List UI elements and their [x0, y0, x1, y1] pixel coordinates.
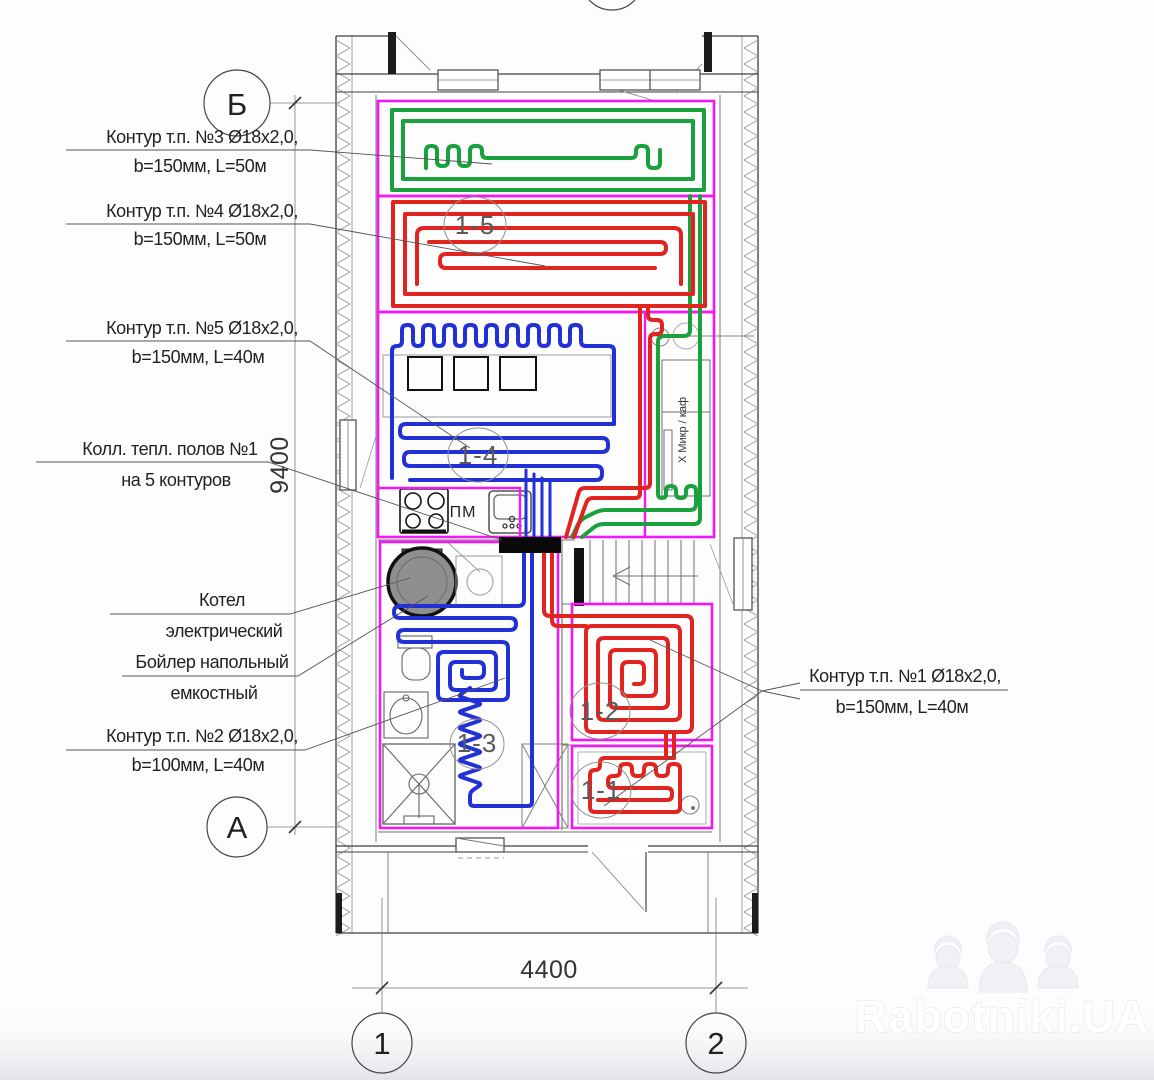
cabinet-label: Х Микр / каф [677, 397, 689, 463]
callout-boiler-line2: электрический [166, 621, 283, 641]
room-label-1-1: 1-1 [581, 775, 622, 805]
worker-body-icon [928, 966, 968, 988]
callout-c2-line1: Контур т.п. №2 Ø18х2,0, [106, 726, 298, 746]
callout-coll-line1: Колл. тепл. полов №1 [82, 439, 258, 459]
shaft [522, 744, 568, 828]
stairs [574, 540, 698, 606]
axis-label-2: 2 [707, 1026, 724, 1061]
watermark: Rabotniki.UA [855, 922, 1150, 1042]
callout-tank-line1: Бойлер напольный [135, 652, 288, 672]
callout-c4-line1: Контур т.п. №4 Ø18х2,0, [106, 201, 298, 221]
pipe-blue5-serpentine [400, 424, 614, 480]
pipe-red4-inner [429, 242, 666, 268]
dim-width: 4400 [520, 956, 578, 984]
stove [400, 489, 448, 533]
room-label-1-2: 1-2 [580, 696, 621, 726]
callout-boiler-line1: Котел [199, 590, 245, 610]
window-bottom [456, 838, 504, 858]
heating-pipes [392, 110, 705, 812]
window-top-left [438, 70, 498, 90]
callout-coll-line2: на 5 контуров [121, 470, 231, 490]
axis-label-a: А [227, 810, 248, 845]
room-label-1-3: 1-3 [457, 728, 498, 758]
callout-c1-line1: Контур т.п. №1 Ø18х2,0, [809, 666, 1001, 686]
pipe-red4-tail-b [574, 306, 640, 537]
axis-label-b: Б [227, 87, 247, 122]
pipe-blue5-wave [392, 325, 614, 478]
plan-svg: Rabotniki.UA [0, 0, 1154, 1080]
callout-c5-line2: b=150мм, L=40м [132, 347, 265, 367]
callout-c5-line1: Контур т.п. №5 Ø18х2,0, [106, 318, 298, 338]
shower [383, 744, 455, 824]
dim-height: 9400 [266, 436, 294, 494]
callout-tank-line2: емкостный [170, 683, 257, 703]
callout-c4-line2: b=150мм, L=50м [134, 229, 267, 249]
window-right-wall [710, 538, 752, 610]
floor-drain [681, 796, 699, 814]
window-top-right [600, 70, 700, 90]
pipe-green-inner [426, 146, 660, 168]
callout-c3-line2: b=150мм, L=50м [134, 156, 267, 176]
axis-label-1: 1 [373, 1026, 390, 1061]
room-label-1-5: 1-5 [455, 210, 496, 240]
room-label-1-4: 1-4 [458, 440, 499, 470]
callout-c1-line2: b=150мм, L=40м [836, 697, 969, 717]
window-left-wall [340, 420, 376, 490]
manifold-collector [499, 537, 561, 553]
entry-door [592, 852, 646, 912]
floorplan-drawing: { "axes": { "top_left": "Б", "bottom_lef… [0, 0, 1154, 1080]
watermark-text: Rabotniki.UA [855, 991, 1150, 1042]
callout-c2-line2: b=100мм, L=40м [132, 755, 265, 775]
dishwasher-label: ПМ [450, 504, 477, 521]
pipe-green-tail-a [572, 196, 696, 537]
counter-unit [408, 357, 442, 390]
washbasin [384, 692, 428, 738]
callout-c3-line1: Контур т.п. №3 Ø18х2,0, [106, 127, 298, 147]
